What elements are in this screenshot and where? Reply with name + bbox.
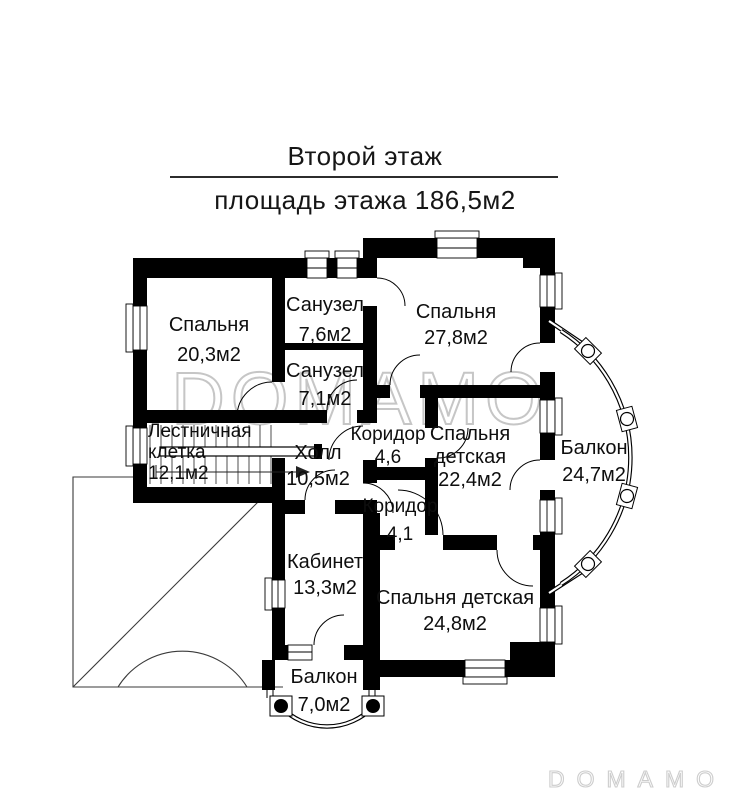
window xyxy=(126,304,147,352)
window xyxy=(540,398,562,435)
window xyxy=(540,273,562,309)
watermark-corner-text: DOMAMO xyxy=(548,766,726,792)
window xyxy=(335,251,359,278)
door-arc xyxy=(510,460,540,490)
room-label-kids-bedroom-1: Спальнядетская22,4м2 xyxy=(430,423,510,492)
door-arc xyxy=(497,550,533,586)
room-label-corridor-2: Коридор4,1 xyxy=(362,493,437,549)
window xyxy=(265,578,285,610)
room-label-hall: Холл10,5м2 xyxy=(286,440,350,492)
room-label-kids-bedroom-2: Спальня детская24,8м2 xyxy=(376,585,534,637)
room-label-balcony-right: Балкон24,7м2 xyxy=(560,435,627,489)
window xyxy=(463,660,507,684)
room-label-corridor-1: Коридор4,6 xyxy=(350,423,425,469)
garage-roof-outline xyxy=(73,477,283,687)
window xyxy=(540,606,562,644)
window xyxy=(435,231,479,258)
room-label-bedroom-1: Спальня20,3м2 xyxy=(169,310,249,370)
window xyxy=(288,645,312,660)
railing-post xyxy=(270,696,292,716)
room-label-stairwell: Лестничнаяклетка12,1м2 xyxy=(148,421,252,484)
room-label-study: Кабинет13,3м2 xyxy=(287,549,363,601)
room-label-balcony-bottom: Балкон7,0м2 xyxy=(290,663,357,719)
room-label-bedroom-2: Спальня27,8м2 xyxy=(416,299,496,351)
room-label-bathroom-1: Санузел7,6м2 xyxy=(286,290,364,350)
door-arc xyxy=(377,278,405,306)
window xyxy=(540,498,562,534)
door-arc xyxy=(314,615,344,645)
window xyxy=(126,426,147,466)
railing-post xyxy=(362,696,384,716)
window xyxy=(305,251,329,278)
floor-plan-page: Второй этаж площадь этажа 186,5м2 DOMAMO xyxy=(0,0,730,800)
railing-post xyxy=(616,406,637,431)
floor-plan-drawing: DOMAMO xyxy=(0,0,730,800)
room-label-bathroom-2: Санузел7,1м2 xyxy=(286,357,364,413)
